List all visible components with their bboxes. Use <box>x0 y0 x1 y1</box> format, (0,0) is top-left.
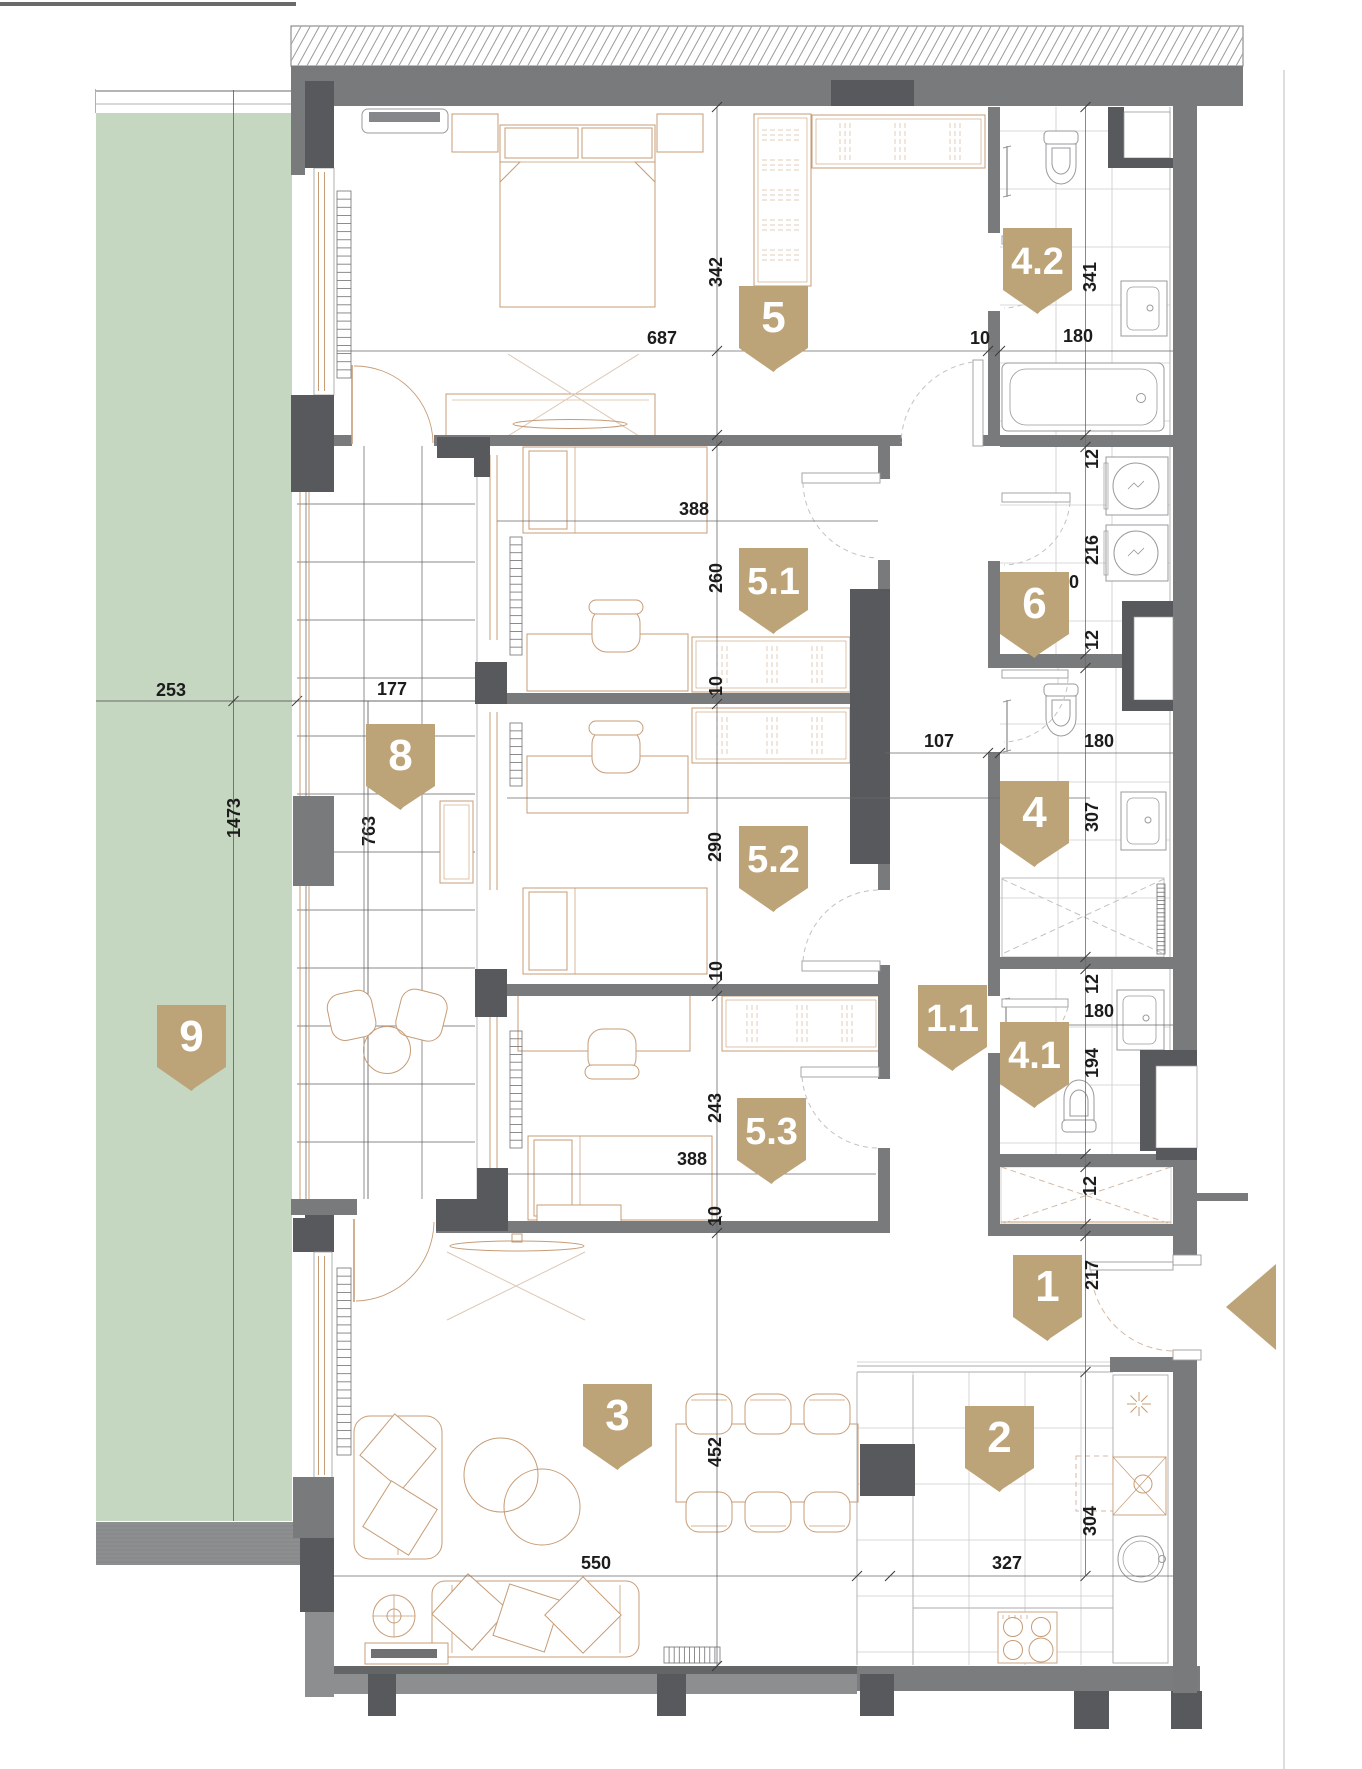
svg-text:550: 550 <box>581 1553 611 1573</box>
svg-text:3: 3 <box>605 1391 629 1440</box>
svg-text:0: 0 <box>1069 572 1079 592</box>
svg-text:8: 8 <box>388 731 412 780</box>
svg-text:5.1: 5.1 <box>747 561 800 603</box>
svg-text:12: 12 <box>1082 974 1102 994</box>
svg-text:194: 194 <box>1082 1048 1102 1078</box>
svg-text:243: 243 <box>705 1093 725 1123</box>
svg-text:253: 253 <box>156 680 186 700</box>
svg-text:290: 290 <box>705 832 725 862</box>
svg-text:1: 1 <box>1035 1262 1059 1311</box>
svg-text:341: 341 <box>1080 262 1100 292</box>
svg-text:452: 452 <box>705 1437 725 1467</box>
svg-text:6: 6 <box>1022 579 1046 628</box>
svg-text:177: 177 <box>377 679 407 699</box>
svg-text:763: 763 <box>359 816 379 846</box>
svg-text:1.1: 1.1 <box>926 998 979 1040</box>
svg-text:12: 12 <box>1080 1176 1100 1196</box>
svg-text:107: 107 <box>924 731 954 751</box>
svg-text:687: 687 <box>647 328 677 348</box>
svg-text:4.1: 4.1 <box>1008 1035 1061 1077</box>
svg-text:260: 260 <box>706 563 726 593</box>
svg-text:327: 327 <box>992 1553 1022 1573</box>
svg-text:5.2: 5.2 <box>747 839 800 881</box>
svg-text:180: 180 <box>1084 731 1114 751</box>
svg-text:217: 217 <box>1082 1260 1102 1290</box>
svg-text:4: 4 <box>1022 788 1047 837</box>
svg-text:5.3: 5.3 <box>745 1111 798 1153</box>
svg-text:388: 388 <box>679 499 709 519</box>
svg-text:4.2: 4.2 <box>1011 241 1064 283</box>
svg-text:216: 216 <box>1082 535 1102 565</box>
svg-text:10: 10 <box>970 328 990 348</box>
svg-text:388: 388 <box>677 1149 707 1169</box>
svg-text:9: 9 <box>179 1012 203 1061</box>
svg-text:5: 5 <box>761 293 785 342</box>
svg-text:10: 10 <box>706 676 726 696</box>
svg-text:1473: 1473 <box>224 798 244 838</box>
svg-text:2: 2 <box>987 1413 1011 1462</box>
svg-text:304: 304 <box>1080 1506 1100 1536</box>
svg-text:10: 10 <box>706 961 726 981</box>
svg-text:12: 12 <box>1082 630 1102 650</box>
svg-text:180: 180 <box>1063 326 1093 346</box>
svg-text:342: 342 <box>706 257 726 287</box>
svg-text:180: 180 <box>1084 1001 1114 1021</box>
svg-text:12: 12 <box>1082 449 1102 469</box>
svg-text:10: 10 <box>705 1206 725 1226</box>
svg-text:307: 307 <box>1082 802 1102 832</box>
